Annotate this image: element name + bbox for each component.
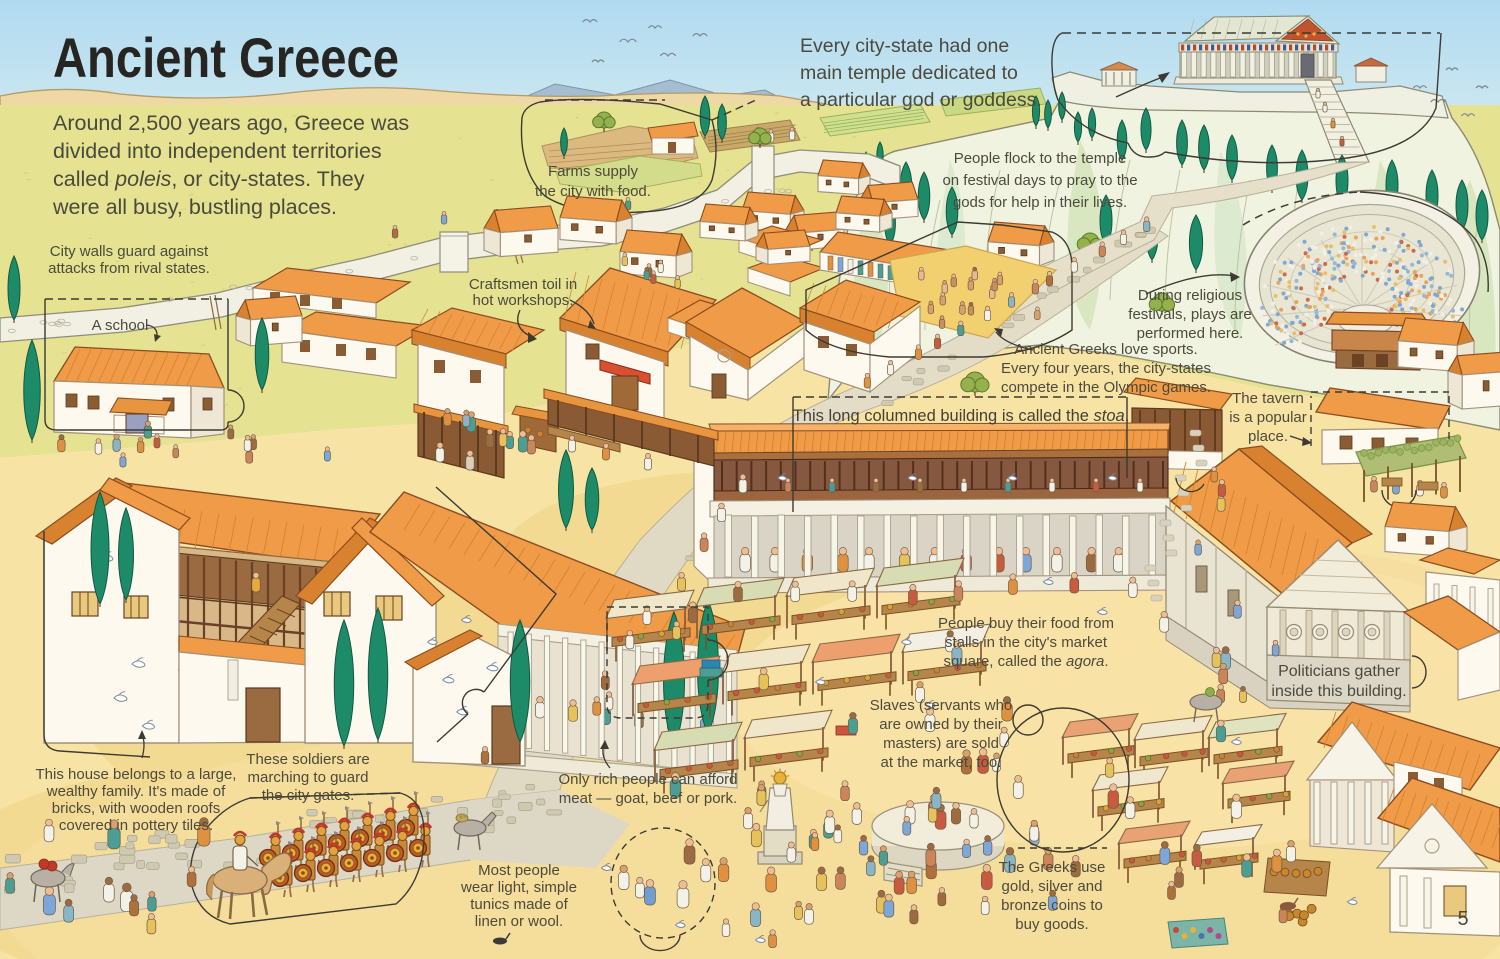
svg-text:place.: place. [1248, 428, 1288, 445]
svg-text:The Greeks use: The Greeks use [999, 859, 1106, 876]
svg-text:main temple dedicated to: main temple dedicated to [800, 62, 1018, 84]
svg-text:Farms supply: Farms supply [548, 163, 639, 180]
svg-text:gods for help in their lives.: gods for help in their lives. [953, 194, 1127, 211]
svg-text:tunics made of: tunics made of [470, 896, 568, 913]
svg-text:This house belongs to a large,: This house belongs to a large, [36, 766, 237, 783]
svg-text:festivals, plays are: festivals, plays are [1128, 306, 1251, 323]
svg-text:meat — goat, beef or pork.: meat — goat, beef or pork. [559, 790, 737, 807]
svg-text:People flock to the temple: People flock to the temple [954, 150, 1127, 167]
svg-text:square, called the agora.: square, called the agora. [943, 653, 1108, 670]
svg-text:hot workshops.: hot workshops. [473, 292, 574, 309]
svg-text:stalls in the city's market: stalls in the city's market [945, 634, 1108, 651]
svg-text:performed here.: performed here. [1137, 325, 1244, 342]
svg-text:buy goods.: buy goods. [1015, 916, 1088, 933]
svg-text:This long columned building is: This long columned building is called th… [793, 407, 1130, 425]
svg-text:People buy their food from: People buy their food from [938, 615, 1114, 632]
svg-text:inside this building.: inside this building. [1271, 683, 1406, 700]
svg-text:Only rich people can afford: Only rich people can afford [559, 771, 738, 788]
svg-text:is a popular: is a popular [1229, 409, 1307, 426]
svg-text:wear light, simple: wear light, simple [460, 879, 577, 896]
svg-text:on festival days to pray to th: on festival days to pray to the [942, 172, 1137, 189]
svg-text:gold, silver and: gold, silver and [1002, 878, 1103, 895]
svg-text:5: 5 [1457, 908, 1468, 930]
svg-text:attacks from rival states.: attacks from rival states. [48, 260, 210, 277]
svg-text:Around 2,500 years ago, Greece: Around 2,500 years ago, Greece was [53, 111, 409, 135]
svg-text:During religious: During religious [1138, 287, 1242, 304]
svg-text:Craftsmen toil in: Craftsmen toil in [469, 276, 577, 293]
svg-text:bricks, with wooden roofs: bricks, with wooden roofs [52, 800, 220, 817]
svg-text:bronze coins to: bronze coins to [1001, 897, 1103, 914]
svg-text:City walls guard against: City walls guard against [50, 243, 209, 260]
svg-text:a particular god or goddess.: a particular god or goddess. [800, 89, 1042, 111]
svg-text:the city with food.: the city with food. [535, 183, 651, 200]
svg-text:called poleis, or city-states.: called poleis, or city-states. They [53, 167, 365, 191]
svg-text:compete in the Olympic games.: compete in the Olympic games. [1001, 379, 1211, 396]
svg-text:linen or wool.: linen or wool. [475, 913, 563, 930]
svg-text:A school: A school [92, 317, 149, 334]
svg-text:Slaves (servants who: Slaves (servants who [870, 697, 1013, 714]
svg-text:Every city-state had one: Every city-state had one [800, 35, 1009, 57]
svg-text:Politicians gather: Politicians gather [1278, 663, 1401, 680]
svg-text:wealthy family. It's made of: wealthy family. It's made of [46, 783, 226, 800]
svg-text:Ancient Greece: Ancient Greece [53, 26, 399, 89]
svg-text:The tavern: The tavern [1232, 390, 1304, 407]
svg-text:These soldiers are: These soldiers are [246, 751, 369, 768]
svg-text:masters) are sold: masters) are sold [883, 735, 999, 752]
svg-text:the city gates.: the city gates. [262, 787, 355, 804]
svg-text:are owned by their: are owned by their [879, 716, 1002, 733]
svg-text:covered in pottery tiles.: covered in pottery tiles. [59, 817, 213, 834]
svg-text:Ancient Greeks love sports.: Ancient Greeks love sports. [1014, 341, 1197, 358]
svg-text:were all busy, bustling places: were all busy, bustling places. [52, 195, 337, 219]
svg-text:at the market, too.: at the market, too. [881, 754, 1002, 771]
svg-text:marching to guard: marching to guard [248, 769, 369, 786]
svg-text:Most people: Most people [478, 862, 560, 879]
svg-text:Every four years, the city-sta: Every four years, the city-states [1001, 360, 1211, 377]
svg-text:divided into independent terri: divided into independent territories [53, 139, 382, 163]
